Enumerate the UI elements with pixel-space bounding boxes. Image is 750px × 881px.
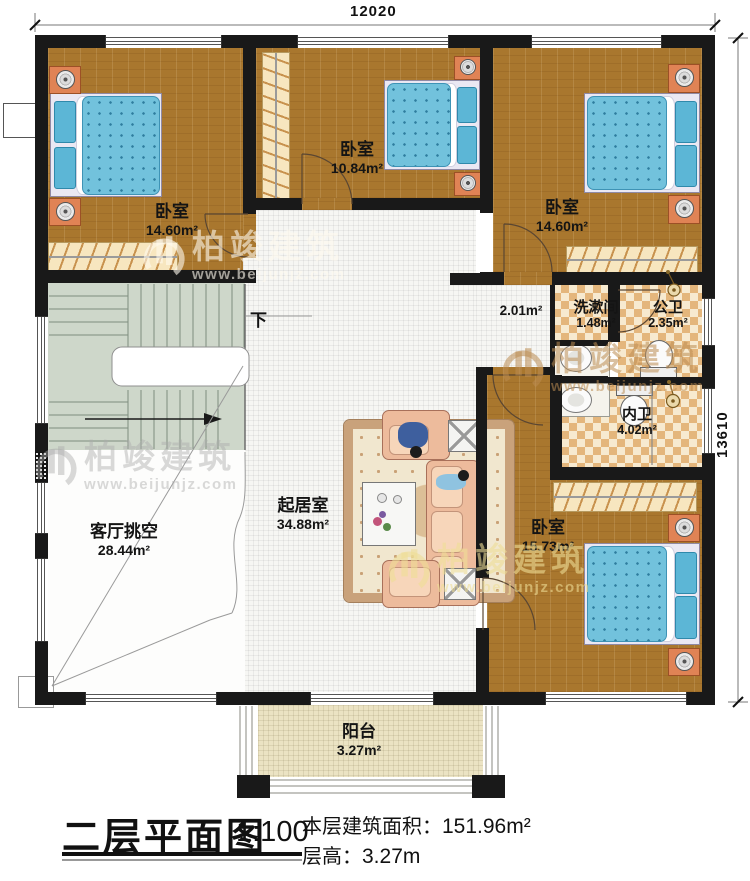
pillow bbox=[54, 101, 76, 143]
mattress bbox=[387, 83, 451, 167]
wall-hall-bottom-right bbox=[543, 367, 550, 375]
window-void-bottom bbox=[85, 692, 217, 705]
cup bbox=[377, 493, 387, 503]
wall-bedroom4-left-stub bbox=[476, 570, 489, 578]
room-area: 28.44m² bbox=[90, 542, 158, 558]
nightstand bbox=[668, 195, 700, 224]
room-label-bedroom-4: 卧室 15.73m² bbox=[522, 518, 574, 554]
bed-bedroom-1 bbox=[50, 93, 162, 197]
sofa-cushion bbox=[389, 567, 431, 597]
room-name: 卧室 bbox=[146, 202, 198, 222]
nightstand bbox=[668, 64, 700, 93]
pillow bbox=[675, 145, 697, 187]
side-table-bottom bbox=[444, 568, 476, 600]
wall-bedroom2-bedroom3 bbox=[480, 48, 493, 213]
dimension-right: 13610 bbox=[714, 411, 731, 458]
wardrobe-bedroom-4 bbox=[553, 482, 697, 512]
wardrobe-bedroom-1 bbox=[48, 242, 178, 272]
pillow bbox=[675, 596, 697, 639]
wardrobe-bedroom-3 bbox=[566, 246, 698, 274]
room-name: 卧室 bbox=[536, 198, 588, 218]
room-name: 卧室 bbox=[331, 140, 383, 160]
nightstand bbox=[454, 56, 482, 80]
bed-bedroom-2 bbox=[384, 80, 480, 170]
room-label-washroom: 洗漱间 1.48m² bbox=[573, 299, 618, 331]
wall-corridor-privatebath bbox=[550, 375, 562, 480]
nightstand bbox=[49, 198, 81, 226]
mattress bbox=[82, 96, 160, 195]
wall-vent-block-left bbox=[35, 452, 48, 480]
pillow bbox=[675, 552, 697, 594]
room-area: 2.01m² bbox=[500, 303, 543, 319]
room-name: 内卫 bbox=[617, 406, 657, 423]
wall-bedroom2-bottom-right bbox=[352, 198, 493, 210]
pillow bbox=[675, 101, 697, 143]
title-underline-thin bbox=[62, 859, 302, 861]
lamp-icon bbox=[675, 199, 694, 218]
wall-under-washroom bbox=[550, 340, 608, 346]
room-name: 客厅挑空 bbox=[90, 522, 158, 542]
lamp-icon bbox=[460, 175, 476, 191]
room-label-private-bath: 内卫 4.02m² bbox=[617, 406, 657, 438]
wall-bath-left-thin bbox=[550, 285, 555, 376]
floor-plan-sheet: 卧室 14.60m² 卧室 10.84m² 卧室 14.60m² 2.01m² … bbox=[0, 0, 750, 881]
window-void-left-2 bbox=[35, 558, 48, 642]
room-name: 卧室 bbox=[522, 518, 574, 538]
room-label-living-room: 起居室 34.88m² bbox=[277, 496, 329, 532]
sink-private-bath bbox=[560, 387, 592, 413]
wall-bedroom3-bottom bbox=[552, 272, 702, 285]
hallway-floor bbox=[476, 285, 550, 367]
window-bedroom4-bottom bbox=[545, 692, 687, 705]
wall-exterior-right bbox=[702, 35, 715, 705]
bed-bedroom-4 bbox=[584, 543, 700, 645]
plan-scale: 1:100 bbox=[236, 816, 309, 849]
nightstand bbox=[668, 648, 700, 676]
wall-bedroom2-bottom-left bbox=[256, 198, 302, 210]
cup bbox=[393, 495, 402, 504]
pillow bbox=[457, 126, 477, 164]
exterior-niche-left bbox=[3, 103, 37, 138]
flower-decor bbox=[379, 511, 386, 518]
stairs-floor bbox=[48, 283, 245, 450]
room-area: 14.60m² bbox=[146, 222, 198, 238]
window-void-left-1 bbox=[35, 482, 48, 534]
wall-bedroom4-left bbox=[476, 628, 489, 692]
title-underline bbox=[62, 852, 302, 856]
coffee-table bbox=[362, 482, 416, 546]
sofa-cushion bbox=[431, 511, 463, 553]
floor-height-value: 3.27m bbox=[362, 845, 420, 868]
nightstand bbox=[454, 172, 482, 196]
room-area: 15.73m² bbox=[522, 538, 574, 554]
wall-corridor-living bbox=[476, 367, 487, 570]
room-area: 1.48m² bbox=[573, 316, 618, 330]
floor-height-row: 层高：3.27m bbox=[302, 840, 420, 869]
pillow bbox=[54, 147, 76, 189]
balcony-sliding-door bbox=[310, 692, 434, 705]
room-area: 10.84m² bbox=[331, 160, 383, 176]
wardrobe-bedroom-2 bbox=[262, 52, 290, 200]
mattress bbox=[587, 96, 667, 190]
floor-area-row: 本层建筑面积：151.96m² bbox=[302, 810, 531, 839]
room-area: 34.88m² bbox=[277, 516, 329, 532]
person-head bbox=[410, 446, 422, 458]
dimension-top: 12020 bbox=[350, 3, 397, 20]
stairs-down-label: 下 bbox=[250, 306, 267, 331]
room-label-bedroom-2: 卧室 10.84m² bbox=[331, 140, 383, 176]
title-block: 二层平面图 1:100 本层建筑面积：151.96m² 层高：3.27m bbox=[0, 798, 750, 881]
lamp-icon bbox=[56, 202, 75, 221]
room-label-living-void: 客厅挑空 28.44m² bbox=[90, 522, 158, 558]
flower-decor bbox=[383, 523, 391, 531]
room-name: 起居室 bbox=[277, 496, 329, 516]
bedroom-1-door-opening bbox=[243, 214, 256, 258]
window-bedroom2-top bbox=[297, 35, 449, 48]
wall-bedroom1-right bbox=[243, 48, 256, 214]
nightstand bbox=[668, 514, 700, 542]
room-area: 14.60m² bbox=[536, 218, 588, 234]
person-sitting bbox=[398, 422, 428, 448]
mattress bbox=[587, 546, 667, 642]
flower-decor bbox=[373, 517, 382, 526]
floor-area-value: 151.96m² bbox=[442, 815, 531, 838]
lamp-icon bbox=[56, 70, 75, 89]
sink-washroom bbox=[560, 344, 592, 372]
lamp-icon bbox=[460, 59, 476, 75]
lamp-icon bbox=[675, 652, 694, 671]
window-bedroom1-top bbox=[105, 35, 222, 48]
window-bedroom3-top bbox=[531, 35, 662, 48]
bedroom-3-door-opening bbox=[504, 272, 552, 285]
bed-bedroom-3 bbox=[584, 93, 700, 193]
room-name: 阳台 bbox=[337, 722, 381, 742]
room-name: 公卫 bbox=[648, 299, 688, 316]
bedroom-2-door-opening bbox=[302, 198, 352, 210]
room-area: 3.27m² bbox=[337, 742, 381, 758]
living-void-floor bbox=[48, 450, 245, 692]
lamp-icon bbox=[675, 518, 694, 537]
floor-height-label: 层高： bbox=[302, 846, 362, 868]
room-name: 洗漱间 bbox=[573, 299, 618, 316]
loveseat-bottom bbox=[382, 560, 440, 608]
floor-area-label: 本层建筑面积： bbox=[302, 816, 442, 838]
room-area: 4.02m² bbox=[617, 423, 657, 437]
person-head bbox=[458, 470, 469, 481]
wall-privatebath-bedroom4 bbox=[550, 467, 702, 480]
pillow bbox=[457, 87, 477, 123]
window-publicbath-right bbox=[702, 298, 715, 346]
wall-bedroom1-bottom bbox=[48, 270, 256, 283]
wall-bedroom3-bottom-stub bbox=[480, 272, 504, 285]
wall-hall-top-stub bbox=[450, 273, 482, 285]
room-label-balcony: 阳台 3.27m² bbox=[337, 722, 381, 758]
room-area: 2.35m² bbox=[648, 316, 688, 330]
lamp-icon bbox=[675, 68, 694, 87]
room-label-hallway: 2.01m² bbox=[500, 303, 543, 319]
room-label-public-bath: 公卫 2.35m² bbox=[648, 299, 688, 331]
window-stairs-left bbox=[35, 316, 48, 424]
room-label-bedroom-3: 卧室 14.60m² bbox=[536, 198, 588, 234]
nightstand bbox=[49, 66, 81, 94]
wall-publicbath-privatebath bbox=[608, 377, 702, 385]
room-label-bedroom-1: 卧室 14.60m² bbox=[146, 202, 198, 238]
